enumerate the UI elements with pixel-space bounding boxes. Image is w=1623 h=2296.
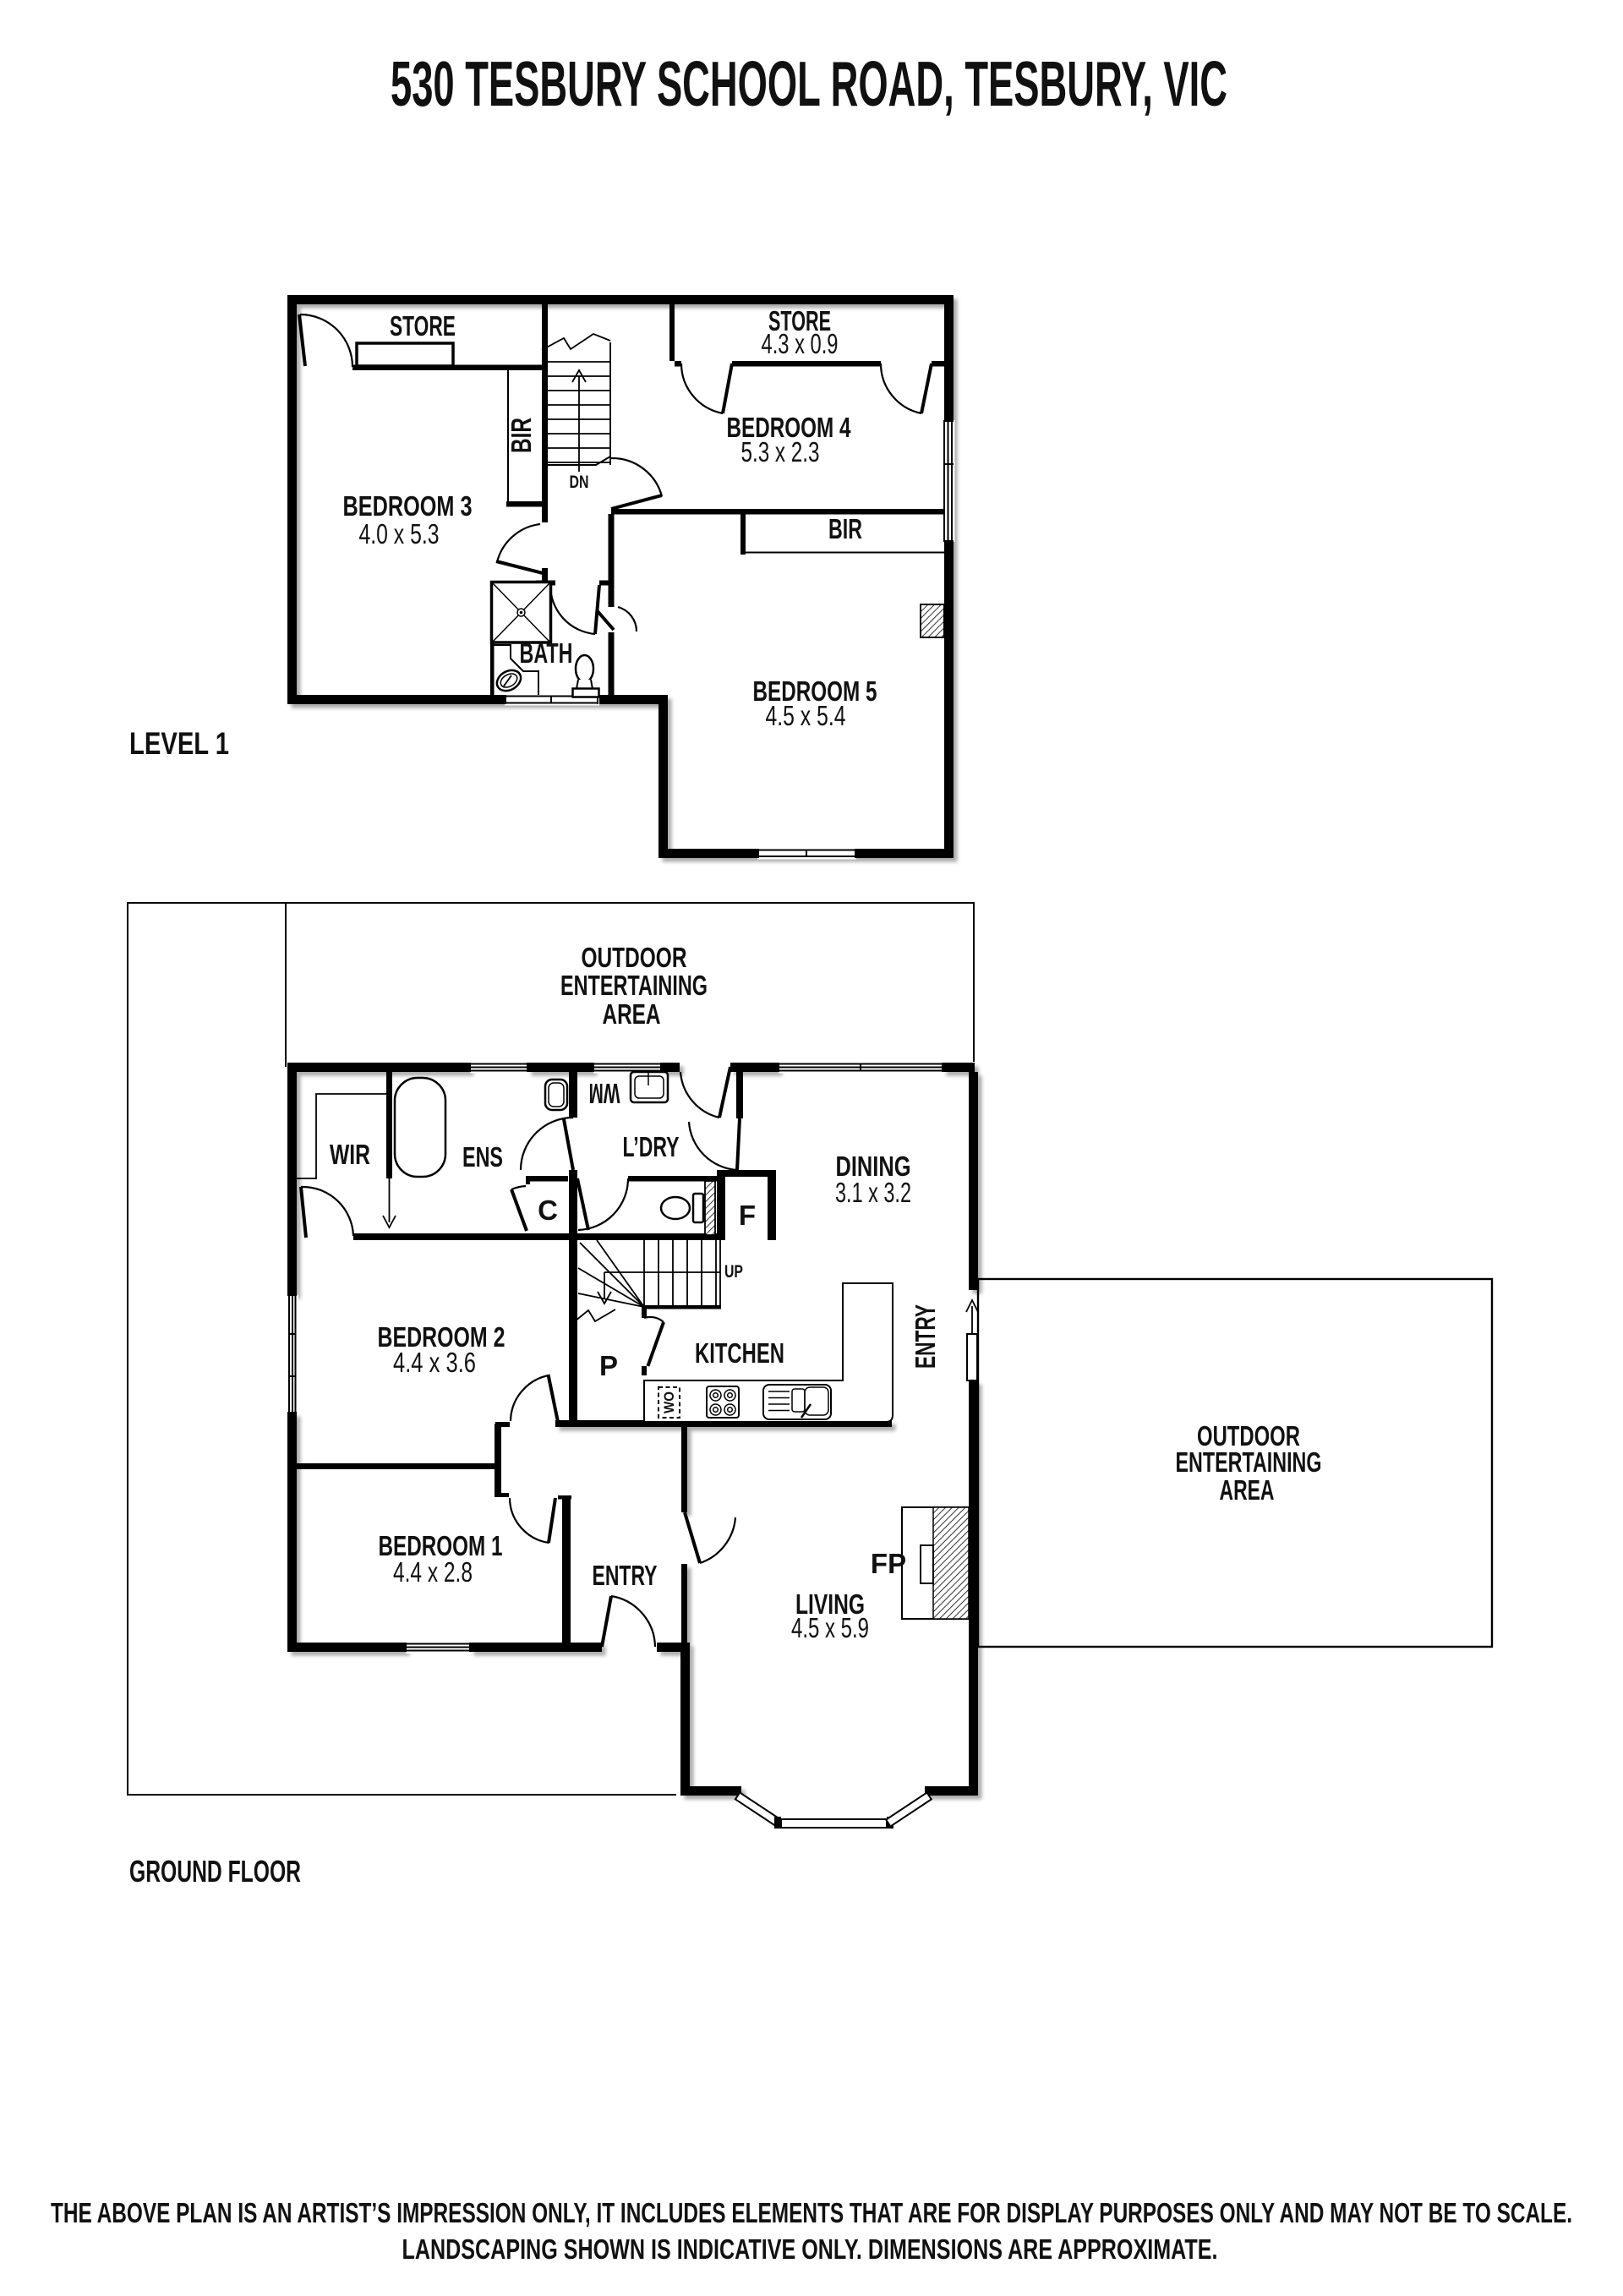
svg-text:4.5 x 5.9: 4.5 x 5.9 xyxy=(791,1612,869,1643)
svg-text:WM: WM xyxy=(589,1078,620,1109)
svg-text:BEDROOM 3: BEDROOM 3 xyxy=(343,490,473,522)
svg-text:AREA: AREA xyxy=(603,998,661,1030)
svg-text:ENTRY: ENTRY xyxy=(910,1304,941,1369)
svg-text:BIR: BIR xyxy=(505,418,537,453)
svg-text:4.5 x 5.4: 4.5 x 5.4 xyxy=(766,700,846,731)
svg-text:P: P xyxy=(599,1350,618,1381)
svg-text:5.3 x 2.3: 5.3 x 2.3 xyxy=(741,436,820,467)
svg-text:BATH: BATH xyxy=(520,637,573,669)
svg-text:LEVEL 1: LEVEL 1 xyxy=(129,726,229,761)
svg-text:ENTERTAINING: ENTERTAINING xyxy=(1176,1446,1322,1478)
svg-text:4.4 x 3.6: 4.4 x 3.6 xyxy=(393,1347,476,1378)
svg-text:GROUND FLOOR: GROUND FLOOR xyxy=(129,1854,301,1889)
svg-text:LANDSCAPING SHOWN IS INDICATIV: LANDSCAPING SHOWN IS INDICATIVE ONLY. DI… xyxy=(402,2233,1218,2265)
svg-text:OUTDOOR: OUTDOOR xyxy=(582,942,687,973)
svg-text:THE ABOVE PLAN IS AN ARTIST’S: THE ABOVE PLAN IS AN ARTIST’S IMPRESSION… xyxy=(51,2197,1572,2228)
svg-text:C: C xyxy=(538,1194,558,1226)
svg-text:L’DRY: L’DRY xyxy=(623,1131,680,1162)
svg-text:DN: DN xyxy=(570,473,589,492)
svg-text:530 TESBURY SCHOOL ROAD, TESBU: 530 TESBURY SCHOOL ROAD, TESBURY, VIC xyxy=(391,48,1227,119)
svg-text:WIR: WIR xyxy=(330,1139,370,1170)
svg-text:UP: UP xyxy=(724,1262,743,1282)
svg-text:KITCHEN: KITCHEN xyxy=(695,1337,784,1369)
svg-text:4.0 x 5.3: 4.0 x 5.3 xyxy=(359,518,440,549)
svg-text:4.3 x 0.9: 4.3 x 0.9 xyxy=(762,328,839,359)
svg-text:WO: WO xyxy=(661,1391,677,1413)
svg-text:AREA: AREA xyxy=(1220,1474,1275,1506)
svg-text:FP: FP xyxy=(871,1548,906,1579)
svg-text:ENS: ENS xyxy=(462,1141,503,1173)
svg-text:ENTERTAINING: ENTERTAINING xyxy=(560,970,708,1001)
svg-text:ENTRY: ENTRY xyxy=(593,1560,658,1591)
svg-text:4.4 x 2.8: 4.4 x 2.8 xyxy=(393,1556,473,1588)
svg-text:STORE: STORE xyxy=(390,310,456,342)
svg-text:F: F xyxy=(739,1200,756,1231)
svg-text:3.1 x 3.2: 3.1 x 3.2 xyxy=(835,1177,911,1208)
svg-text:BIR: BIR xyxy=(828,513,862,544)
